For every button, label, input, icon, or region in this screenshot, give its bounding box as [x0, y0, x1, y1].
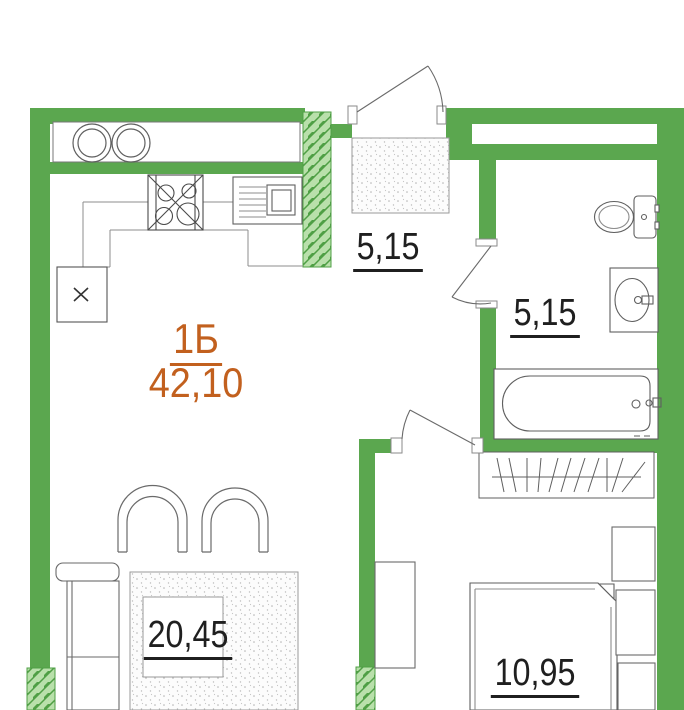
bathtub-icon: [494, 369, 661, 439]
washbasin-icon: [610, 268, 658, 332]
toilet-icon: [595, 196, 660, 238]
entrance-door-icon: [357, 66, 443, 112]
bedroom-area-label: 10,95: [471, 654, 599, 698]
armchair-icon: [118, 486, 187, 553]
apartment-total-area-label: 42,10: [129, 362, 264, 404]
kitchen-sink-icon: [233, 177, 302, 224]
appliance-box-icon: [57, 267, 107, 322]
living-area-label: 20,45: [124, 616, 252, 660]
kitchen-counter-strip: [53, 122, 300, 162]
hallway-area-label: 5,15: [324, 228, 452, 272]
gas-stove-icon: [148, 175, 203, 230]
armchair-icon: [202, 488, 268, 552]
bathroom-area-label: 5,15: [481, 294, 609, 338]
floor-plan: 5,15 5,15 1Б 42,10 20,45 10,95: [0, 0, 684, 710]
wardrobe: [375, 562, 415, 668]
hall-door-icon: [402, 410, 475, 445]
hall-cabinet: [352, 138, 449, 213]
sofa-icon: [56, 563, 119, 710]
desk: [612, 527, 655, 581]
closet-hatch-icon: [479, 452, 654, 498]
nightstand: [616, 590, 655, 710]
floor-plan-drawing: [0, 0, 684, 710]
